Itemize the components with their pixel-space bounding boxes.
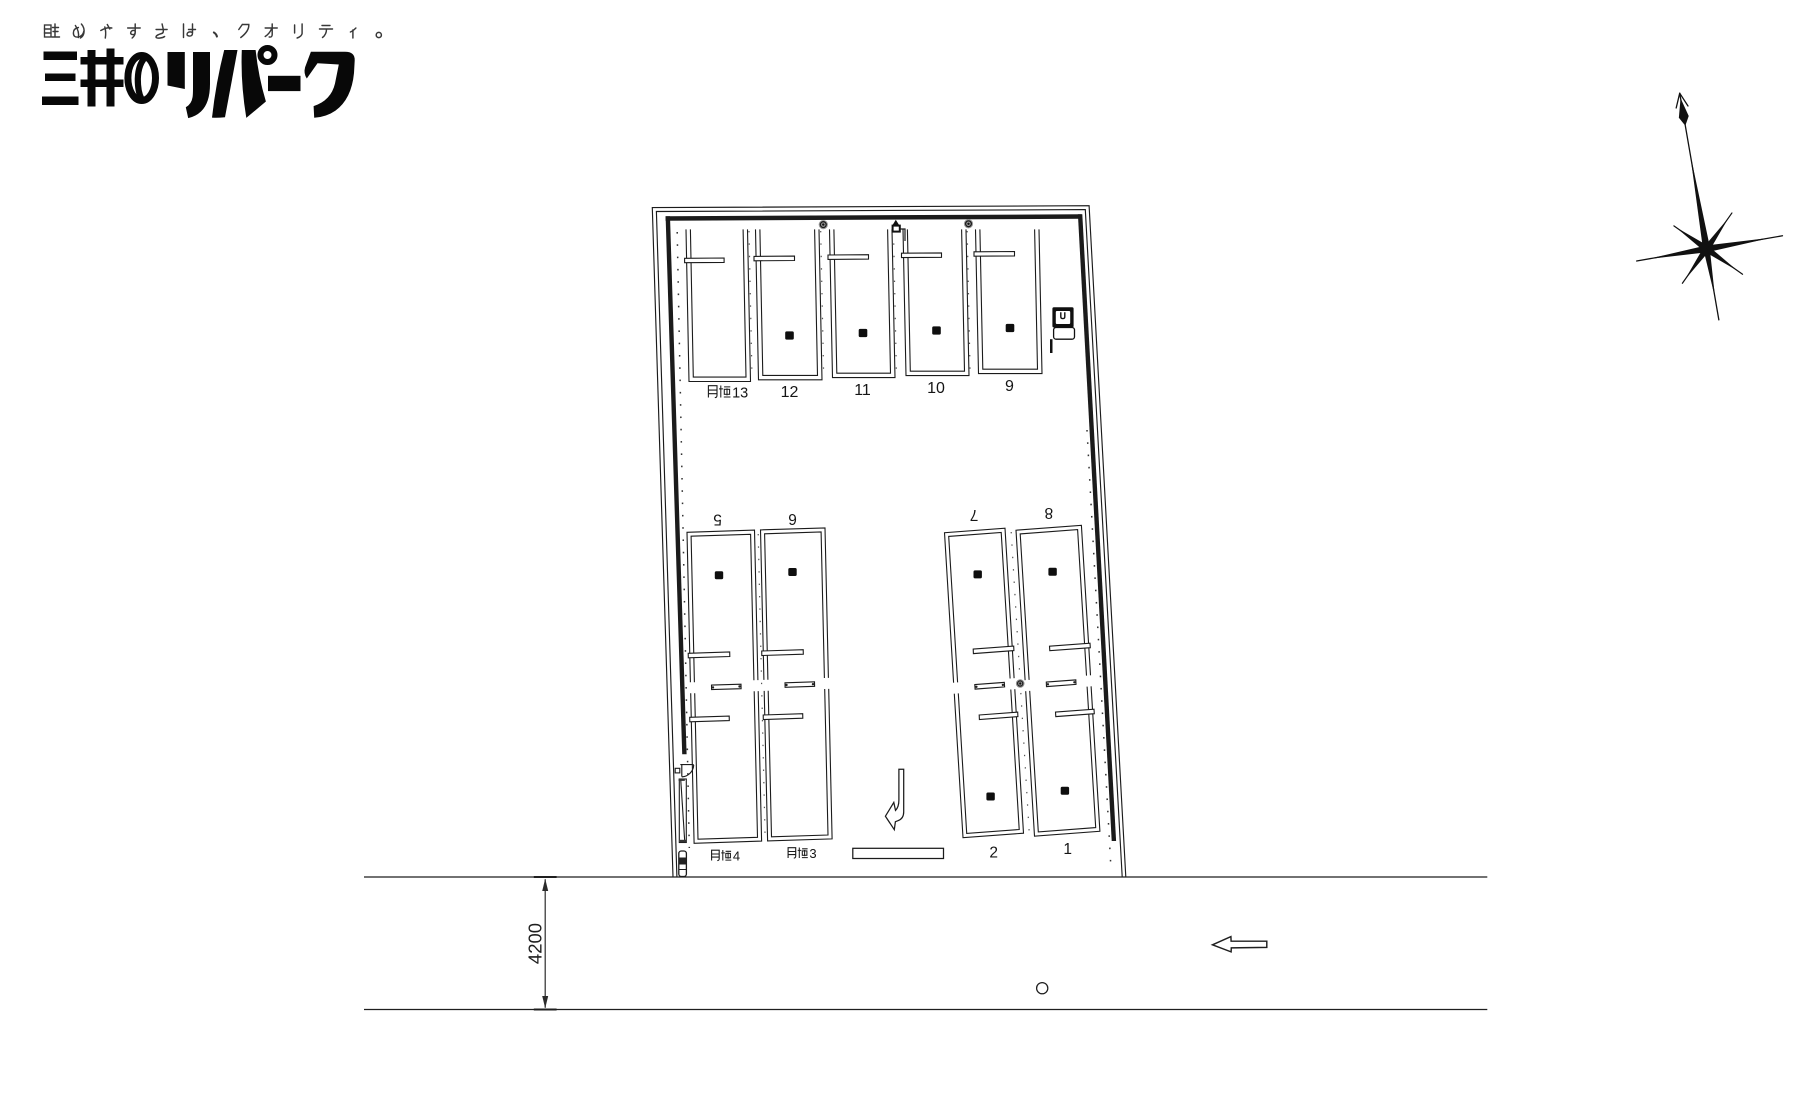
svg-text:13: 13 (732, 386, 748, 402)
svg-text:5: 5 (713, 511, 722, 528)
svg-text:9: 9 (1005, 378, 1014, 395)
svg-text:11: 11 (854, 382, 871, 399)
svg-text:3: 3 (809, 846, 816, 861)
svg-text:1: 1 (1063, 841, 1072, 858)
svg-text:4: 4 (733, 849, 740, 864)
svg-text:8: 8 (1044, 504, 1053, 521)
svg-text:2: 2 (989, 845, 998, 862)
svg-text:12: 12 (781, 384, 799, 401)
svg-text:10: 10 (927, 380, 945, 397)
svg-text:7: 7 (970, 506, 979, 523)
svg-text:6: 6 (788, 510, 797, 527)
svg-text:4200: 4200 (525, 923, 546, 964)
